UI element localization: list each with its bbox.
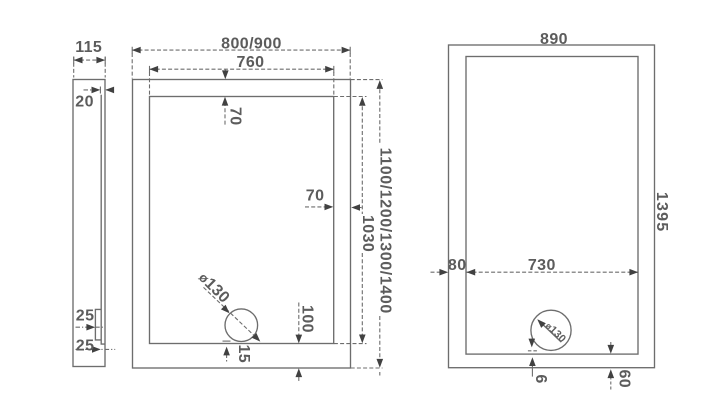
svg-text:60: 60	[615, 369, 632, 388]
svg-text:70: 70	[226, 107, 243, 126]
svg-text:15: 15	[235, 344, 252, 363]
svg-text:ø130: ø130	[195, 269, 233, 307]
svg-text:70: 70	[306, 188, 325, 205]
svg-text:6: 6	[532, 374, 549, 383]
svg-text:1395: 1395	[653, 192, 670, 232]
svg-text:760: 760	[237, 54, 265, 71]
svg-text:25: 25	[76, 308, 95, 325]
svg-text:800/900: 800/900	[221, 36, 282, 53]
svg-text:730: 730	[528, 257, 556, 274]
svg-text:25: 25	[76, 338, 95, 355]
svg-text:ø130: ø130	[543, 320, 568, 345]
svg-text:100: 100	[298, 305, 315, 333]
svg-text:80: 80	[448, 257, 467, 274]
svg-text:115: 115	[75, 39, 102, 56]
svg-text:1030: 1030	[359, 215, 376, 252]
svg-text:20: 20	[75, 93, 94, 110]
svg-text:890: 890	[540, 31, 568, 48]
svg-text:1100/1200/1300/1400: 1100/1200/1300/1400	[376, 148, 393, 314]
